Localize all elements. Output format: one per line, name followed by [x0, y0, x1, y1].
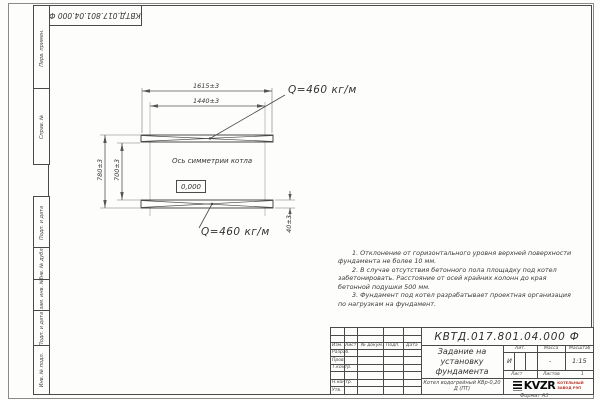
tb-sheets-label: Листов [543, 372, 560, 377]
side-column-label: Перв. примен. [39, 29, 45, 67]
side-column-perv-primen: Перв. примен. [33, 5, 50, 90]
tb-sheet-label: Лист [511, 372, 522, 377]
side-column-vzam-inv: Взам. инв. № [33, 279, 50, 312]
side-column-label: Справ. № [39, 114, 45, 138]
tb-header-list: Лист [345, 343, 356, 348]
tb-scale-value: 1:15 [572, 357, 587, 365]
tb-header-podp: Подп. [386, 343, 400, 348]
note-1: 1. Отклонение от горизонтального уровня … [338, 249, 574, 266]
dim-pad-thickness: 40±3 [285, 215, 293, 233]
tb-header-n-docum: № докум. [361, 343, 383, 348]
tb-drawing-title: Задание на установку фундамента [423, 346, 501, 377]
title-block: Изм. Лист № докум. Подп. Дата Разраб. Пр… [330, 327, 594, 395]
side-column-label: Подп. и дата [39, 205, 45, 239]
top-doc-number-stamp: КВТД.017.801.04.000 Ф [48, 5, 142, 26]
side-column-podp-data-1: Подп. и дата [33, 196, 50, 249]
top-doc-number: КВТД.017.801.04.000 Ф [49, 11, 141, 20]
logo-caption: КОТЕЛЬНЫЙ ЗАВОД РЭП [557, 381, 583, 390]
tb-doc-number: КВТД.017.801.04.000 Ф [421, 328, 593, 345]
side-column-inv-dubl: Инв. № дубл. [33, 247, 50, 281]
load-callout-bottom: Q=460 кг/м [201, 226, 270, 238]
tb-row-prov: Пров. [332, 358, 345, 363]
format-label: Формат А3 [520, 393, 548, 399]
side-column-sprav-no: Справ. № [33, 88, 50, 165]
tb-row-razrab: Разраб. [332, 350, 350, 355]
tb-mass-value: - [549, 357, 551, 365]
logo-text: KVZR [524, 379, 555, 392]
side-column-podp-data-2: Подп. и дата [33, 310, 50, 347]
drawing-sheet: КВТД.017.801.04.000 Ф Перв. примен. Спра… [0, 0, 600, 400]
side-column-label: Подп. и дата [39, 311, 45, 345]
tb-scale-label: Масштаб [569, 346, 590, 351]
tb-lit-label: Лит. [515, 346, 525, 351]
elevation-mark: 0,000 [176, 180, 206, 193]
dim-width-outer: 1615±3 [193, 82, 219, 90]
tb-lit-value: И [507, 357, 512, 365]
dim-height-inner: 700±3 [113, 159, 121, 181]
side-column-label: Инв. № подл. [39, 353, 45, 388]
tb-mass-label: Масса [544, 346, 558, 351]
dim-width-inner: 1440±3 [193, 97, 219, 105]
note-3: 3. Фундамент под котел разрабатывает про… [338, 291, 574, 308]
note-2: 2. В случае отсутствия бетонного пола пл… [338, 266, 574, 291]
tb-row-utv: Утв. [332, 388, 341, 393]
tb-row-nkontr: Н.контр. [332, 380, 352, 385]
side-column-label: Взам. инв. № [39, 279, 45, 313]
coil-logo-icon [513, 381, 522, 391]
tb-product-name: Котел водогрейный КВр-0,20 Д (ПТ) [423, 379, 501, 393]
tb-row-tkontr: Т.контр. [332, 365, 352, 370]
tb-header-data: Дата [406, 343, 418, 348]
notes-block: 1. Отклонение от горизонтального уровня … [338, 249, 574, 308]
load-callout-top: Q=460 кг/м [288, 84, 357, 96]
side-column-inv-podl: Инв. № подл. [33, 345, 50, 395]
tb-sheets-value: 1 [581, 372, 584, 377]
elevation-value: 0,000 [181, 183, 201, 191]
manufacturer-logo: KVZR КОТЕЛЬНЫЙ ЗАВОД РЭП [504, 378, 592, 393]
side-column-label: Инв. № дубл. [39, 247, 45, 281]
axis-of-symmetry-label: Ось симметрии котла [172, 157, 252, 165]
tb-header-izm: Изм. [332, 343, 343, 348]
dim-height-outer: 780±3 [96, 159, 104, 181]
